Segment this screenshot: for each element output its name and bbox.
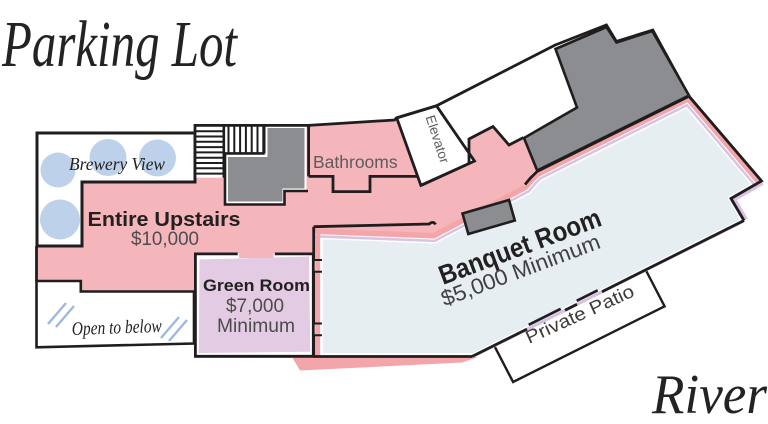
svg-text:$7,000: $7,000 xyxy=(226,296,284,317)
svg-text:River: River xyxy=(651,364,767,419)
svg-text:Brewery View: Brewery View xyxy=(69,154,165,174)
svg-text:Bathrooms: Bathrooms xyxy=(313,152,398,172)
svg-text:$10,000: $10,000 xyxy=(131,228,199,250)
svg-text:Parking Lot: Parking Lot xyxy=(1,8,238,81)
svg-text:Green Room: Green Room xyxy=(203,276,310,295)
svg-text:Minimum: Minimum xyxy=(217,316,295,337)
svg-text:Open to below: Open to below xyxy=(71,316,162,340)
